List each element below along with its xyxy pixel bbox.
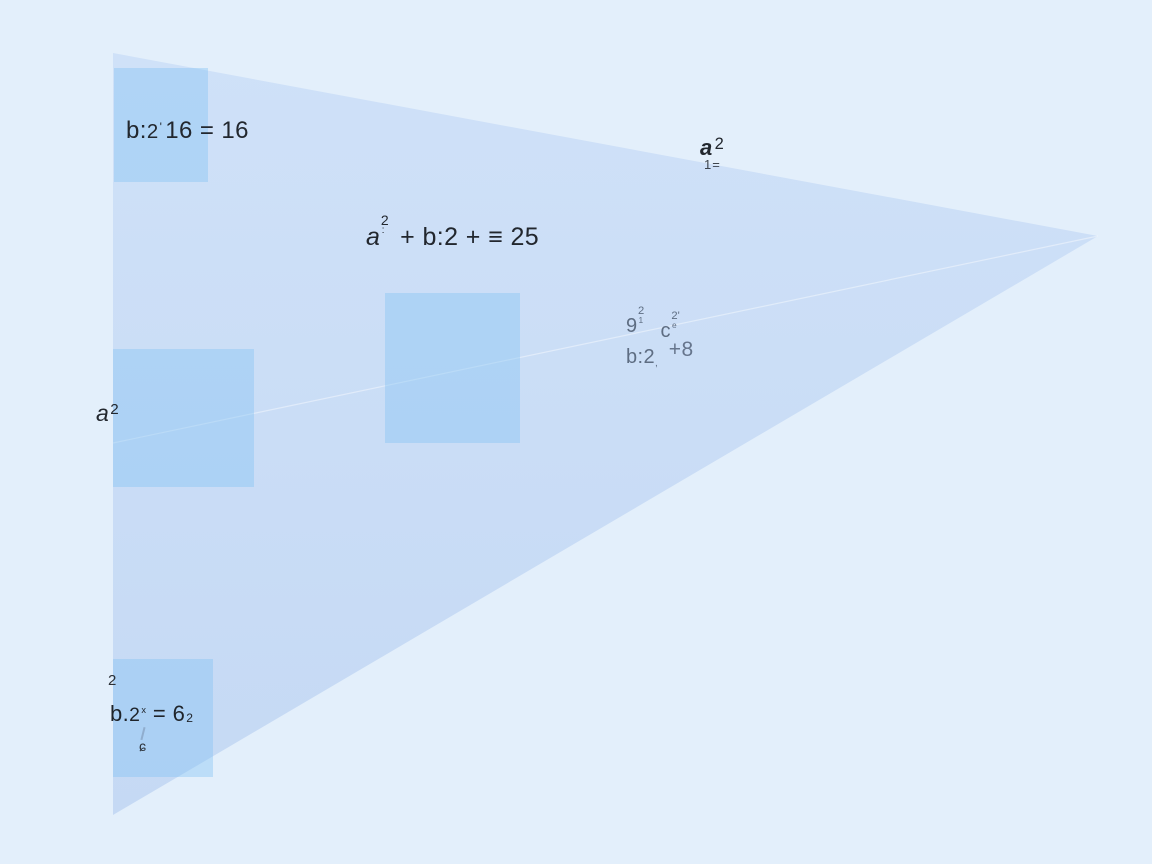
formula-part-rest: + b:2 + ≡ 25 bbox=[393, 223, 539, 251]
label-left-a-squared: a2 bbox=[96, 402, 119, 425]
apex-superscript: 2 bbox=[715, 135, 725, 153]
mid-first-base: 9 bbox=[626, 315, 638, 337]
square-left-middle bbox=[113, 349, 254, 487]
label-bottom-small-c: ɕ bbox=[139, 739, 146, 753]
label-center-formula: a2: + b:2 + ≡ 25 bbox=[366, 220, 539, 250]
bottom-part-rest: = 6 bbox=[146, 701, 185, 726]
label-apex-a-squared: a2 1= bbox=[700, 136, 724, 171]
mid-cluster-line-2: b:2,+8 bbox=[626, 346, 694, 369]
label-top-left-formula: b:2'16 = 16 bbox=[126, 119, 249, 143]
formula-base-a: a bbox=[366, 223, 380, 251]
mid-l2-plus-eight: +8 bbox=[669, 338, 694, 361]
mid-l2-pre: b: bbox=[626, 346, 643, 368]
bottom-small-two-text: 2 bbox=[108, 672, 117, 689]
formula-part-two: 2 bbox=[147, 121, 159, 143]
formula-subscript: : bbox=[382, 225, 385, 236]
left-base-a: a bbox=[96, 400, 109, 426]
mid-second-stack: 2'e bbox=[671, 317, 681, 337]
mid-l2-two: 2 bbox=[643, 346, 655, 368]
left-superscript: 2 bbox=[110, 401, 119, 418]
label-bottom-formula: b.2x = 62 bbox=[110, 703, 193, 725]
formula-part-rest: 16 = 16 bbox=[165, 117, 249, 144]
square-middle bbox=[385, 293, 520, 443]
mid-second-sub: e bbox=[672, 321, 677, 329]
mid-l2-sub: , bbox=[655, 358, 658, 369]
bottom-part-two: 2 bbox=[129, 704, 140, 726]
mid-cluster-line-1: 921c2'e bbox=[626, 312, 694, 336]
mid-first-sub: 1 bbox=[639, 316, 644, 324]
formula-sup-sub-stack: 2: bbox=[380, 220, 393, 245]
label-bottom-small-two: 2 bbox=[108, 673, 117, 688]
apex-sub-label: 1= bbox=[704, 158, 724, 171]
bottom-small-c-text: ɕ bbox=[139, 738, 146, 754]
formula-part-pre: b: bbox=[126, 117, 147, 144]
label-mid-gray-cluster: 921c2'e b:2,+8 bbox=[626, 312, 694, 369]
formula-part-tick: ' bbox=[160, 120, 163, 134]
bottom-part-sub: 2 bbox=[186, 711, 193, 725]
bottom-part-pre: b. bbox=[110, 701, 129, 726]
mid-first-stack: 21 bbox=[638, 312, 648, 332]
pythagorean-diagram-canvas: b:2'16 = 16 a2: + b:2 + ≡ 25 a2 1= 921c2… bbox=[0, 0, 1152, 864]
